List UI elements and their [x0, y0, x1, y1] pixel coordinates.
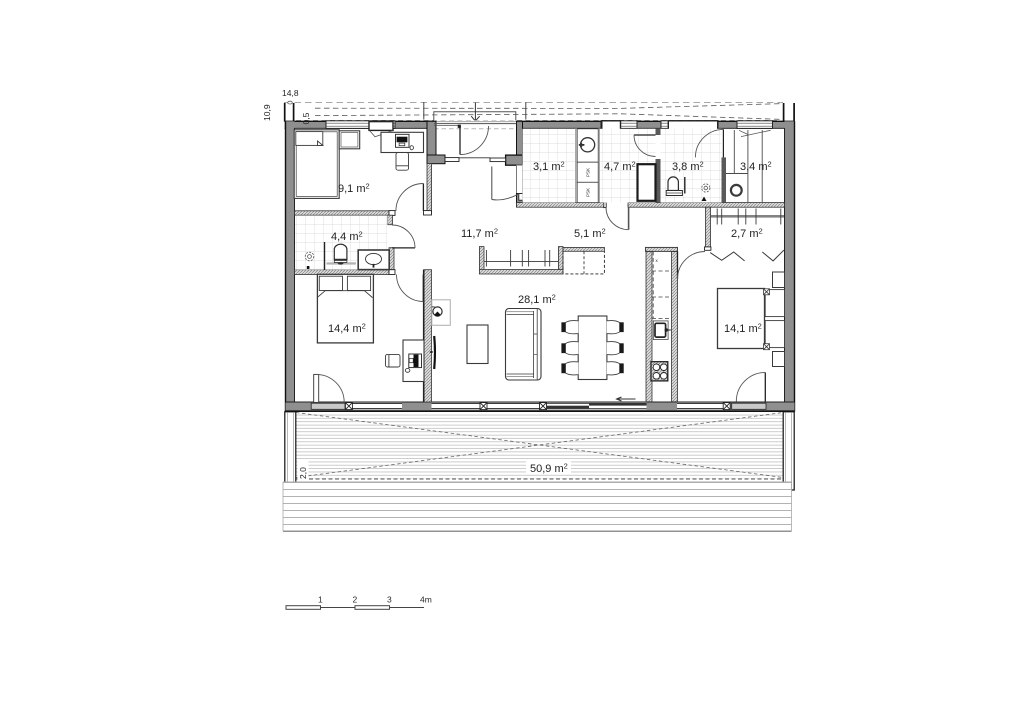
- svg-text:PSK: PSK: [586, 168, 591, 177]
- svg-text:3,1 m2: 3,1 m2: [533, 160, 565, 174]
- svg-text:0,5: 0,5: [301, 112, 311, 124]
- svg-text:4,7 m2: 4,7 m2: [604, 160, 636, 174]
- svg-text:50,9 m2: 50,9 m2: [530, 462, 568, 476]
- svg-text:14,8: 14,8: [282, 88, 299, 98]
- svg-text:3,4 m2: 3,4 m2: [740, 160, 772, 174]
- svg-text:10,9: 10,9: [262, 104, 272, 121]
- svg-text:4m: 4m: [420, 595, 432, 605]
- svg-text:3: 3: [387, 595, 392, 605]
- svg-text:11,7 m2: 11,7 m2: [461, 227, 498, 241]
- svg-text:2,7 m2: 2,7 m2: [731, 227, 763, 241]
- svg-text:2: 2: [353, 595, 358, 605]
- svg-text:PSK: PSK: [586, 188, 591, 197]
- svg-text:4,4 m2: 4,4 m2: [331, 230, 363, 244]
- svg-text:28,1 m2: 28,1 m2: [518, 293, 556, 307]
- svg-text:5,1 m2: 5,1 m2: [574, 227, 606, 241]
- svg-text:9,1 m2: 9,1 m2: [338, 182, 370, 196]
- svg-text:14,4 m2: 14,4 m2: [328, 322, 366, 336]
- svg-text:14,1 m2: 14,1 m2: [724, 322, 762, 336]
- svg-text:3,8 m2: 3,8 m2: [672, 160, 704, 174]
- svg-text:1: 1: [318, 595, 323, 605]
- svg-text:2,0: 2,0: [298, 467, 308, 479]
